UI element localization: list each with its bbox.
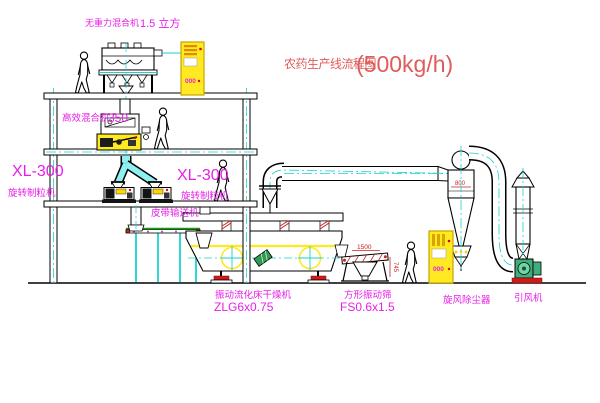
page-title-capacity: (500kg/h) — [356, 51, 453, 77]
person-figure — [403, 242, 417, 283]
screen-model: FS0.6x1.5 — [340, 300, 395, 314]
belt-conveyor-label: 皮带输送机 — [151, 207, 199, 219]
fan-label: 引风机 — [514, 292, 543, 304]
cabinet-display: 000 — [433, 266, 444, 273]
person-figure — [155, 108, 169, 149]
cyclone-width-dim: 800 — [455, 181, 466, 187]
vibrating-screen: 1500 745 — [341, 244, 398, 281]
granulator-left-name: 旋转制粒机 — [8, 187, 56, 199]
granulator-right-name: 旋转制粒机 — [181, 190, 229, 202]
induced-draft-fan — [512, 259, 542, 283]
process-flow-diagram: 1500 745 800 — [0, 0, 600, 403]
high-eff-mixer-size: 350 — [108, 111, 128, 125]
discharge-pipe — [128, 205, 144, 232]
high-eff-mixer-label: 高效混合机 — [62, 112, 110, 124]
gravity-mixer-size: 1.5 立方 — [140, 16, 180, 30]
screen-length-dim: 1500 — [357, 244, 372, 251]
control-cabinet-1: 000 — [181, 42, 204, 95]
y-splitter-pipe — [111, 156, 162, 185]
granulator-left-machine — [102, 183, 136, 204]
cyclone-label: 旋风除尘器 — [443, 294, 491, 306]
exhaust-duct — [469, 153, 513, 265]
gravity-mixer-label: 无重力混合机 — [85, 17, 139, 28]
control-cabinet-2: 000 — [429, 231, 453, 283]
cabinet-display: 000 — [185, 78, 196, 85]
person-figure — [76, 52, 90, 93]
granulator-right-model: XL-300 — [177, 167, 229, 184]
dryer-model: ZLG6x0.75 — [214, 300, 274, 314]
screen-height-dim: 745 — [392, 262, 398, 273]
granulator-left-model: XL-300 — [12, 163, 64, 180]
granulator-right-machine — [139, 183, 173, 204]
cad-canvas: 1500 745 800 — [0, 0, 600, 403]
